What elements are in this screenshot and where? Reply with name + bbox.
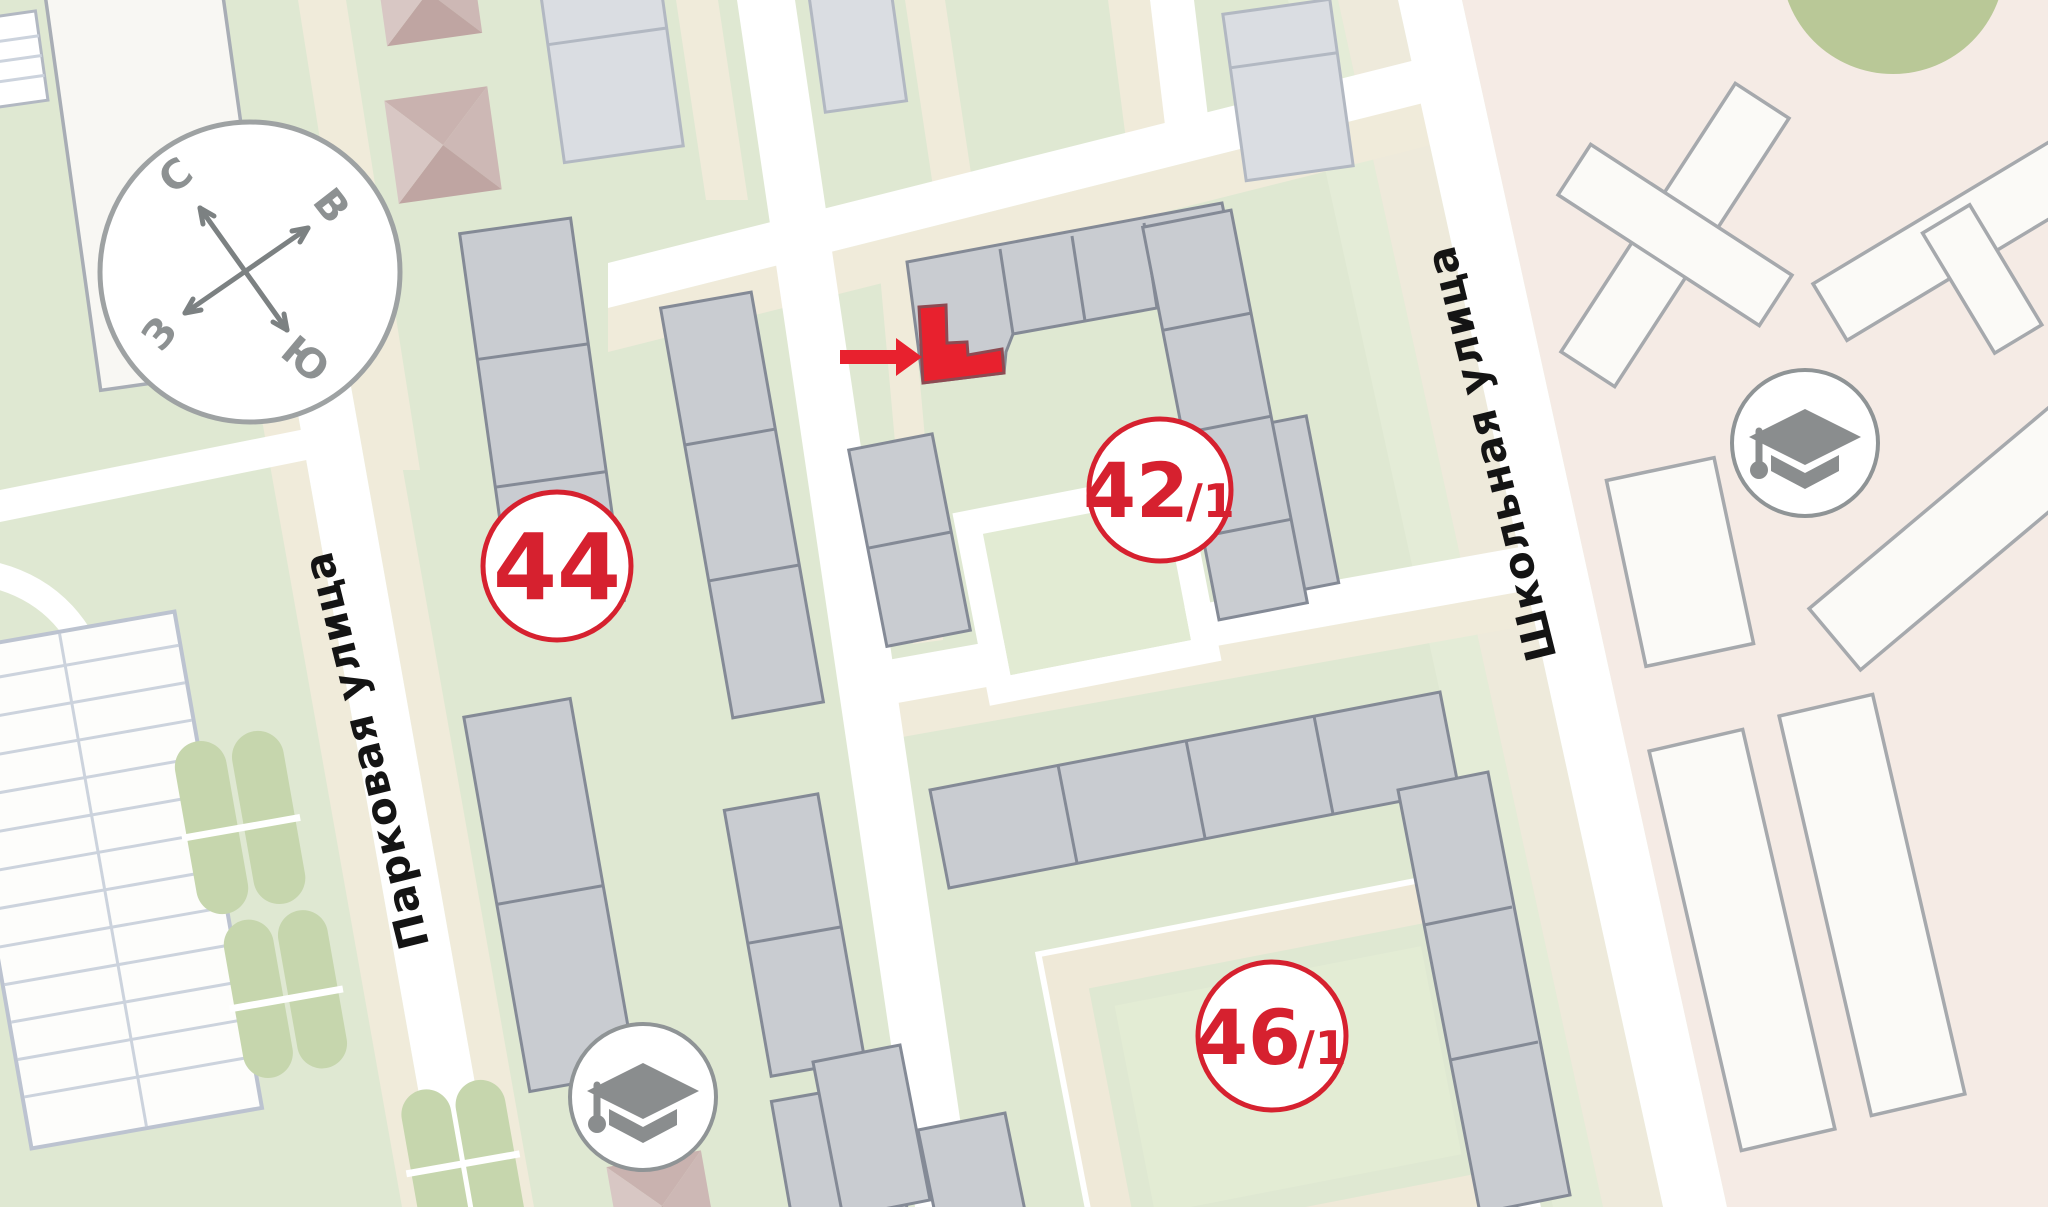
- school-marker-left: [570, 1024, 716, 1170]
- building-light-top: [541, 0, 683, 163]
- badge-label: 42: [1083, 446, 1189, 535]
- compass-rose: С В З Ю: [100, 122, 400, 422]
- badge-suffix: /1: [1298, 1021, 1347, 1075]
- building-light-top: [1223, 0, 1353, 181]
- pavilion-roof: [384, 86, 501, 203]
- map-stage: 44 42 /1 46 /1 Парковая улица Школьная у…: [0, 0, 2048, 1207]
- map-canvas: 44 42 /1 46 /1 Парковая улица Школьная у…: [0, 0, 2048, 1207]
- badge-house-46-1[interactable]: 46 /1: [1195, 962, 1347, 1110]
- compass-circle: [100, 122, 400, 422]
- badge-label: 46: [1195, 993, 1301, 1082]
- badge-suffix: /1: [1186, 474, 1235, 528]
- building-light-top: [809, 0, 906, 112]
- badge-house-44[interactable]: 44: [483, 492, 631, 640]
- school-marker-right: [1732, 370, 1878, 516]
- badge-house-42-1[interactable]: 42 /1: [1083, 419, 1235, 561]
- badge-label: 44: [493, 514, 621, 621]
